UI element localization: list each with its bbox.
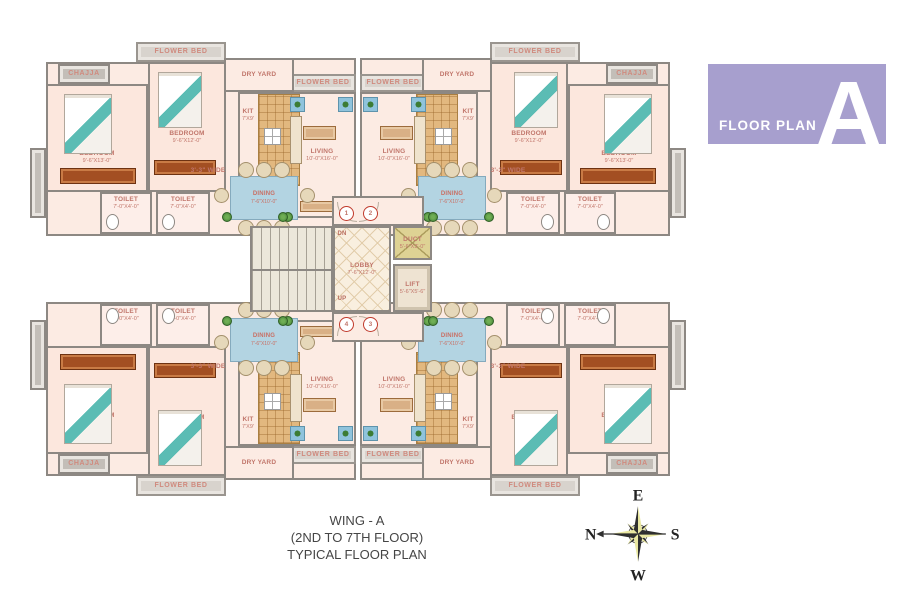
plant-icon-u1: [222, 212, 232, 222]
chair-icon-u2: [444, 220, 460, 236]
kitchen-label-name: KIT: [242, 416, 253, 424]
chajja-corner-u3: CHAJJA: [606, 454, 658, 474]
kitchen-label-name: KIT: [462, 416, 473, 424]
duct-dim: 5'-6"X3'-0": [400, 244, 426, 251]
staircase: [250, 226, 333, 312]
flower-bed-center-u3: FLOWER BED: [360, 446, 426, 464]
chair-icon-u3: [462, 360, 478, 376]
dining-table-name: DINING: [441, 191, 463, 199]
stairs-dn-label: DN: [334, 231, 350, 239]
flower-bed-u2: FLOWER BED: [490, 42, 580, 62]
flower-bed-center-label: FLOWER BED: [296, 79, 349, 87]
dining-table-dim: 7'-6"X10'-0": [439, 199, 465, 206]
wc-icon-u2: [541, 214, 554, 230]
toilet-name: TOILET: [171, 196, 195, 204]
bed-u4: [158, 410, 202, 466]
kitchen-sink-icon-u3: [435, 393, 452, 410]
lift-name: LIFT: [405, 281, 420, 289]
bedroom-large-dim: 9'-6"X13'-0": [83, 158, 112, 165]
planter-icon-u3: [363, 426, 378, 441]
dry-yard-label: DRY YARD: [440, 459, 474, 467]
dry-yard-u4: DRY YARD: [224, 446, 294, 480]
chair-icon-u3: [426, 360, 442, 376]
living-dim: 10'-0"X16'-0": [378, 384, 410, 391]
chair-icon-u2: [444, 162, 460, 178]
duct-name: DUCT: [403, 236, 422, 244]
wc-icon-u4: [106, 308, 119, 324]
compass-north-label: N: [585, 527, 597, 544]
chair-icon-u1: [238, 162, 254, 178]
living-name: LIVING: [311, 148, 334, 156]
chajja-corner-u1: CHAJJA: [58, 64, 110, 84]
kitchen-label-u1: KIT7'X9': [234, 106, 262, 124]
kitchen-label-dim: 7'X9': [242, 424, 254, 431]
dry-yard-u1: DRY YARD: [224, 58, 294, 92]
plant-icon: [428, 316, 438, 326]
wardrobe-u1: [60, 168, 136, 184]
wardrobe-u2: [580, 168, 656, 184]
chair-icon-u3: [462, 302, 478, 318]
flower-bed-center-label: FLOWER BED: [296, 451, 349, 459]
chair-icon-u3: [444, 302, 460, 318]
passage-label-u1: 3'-3" WIDE: [180, 166, 236, 176]
stairs-dn-label-label: DN: [337, 231, 346, 239]
bed-u2: [514, 72, 558, 128]
toilet-dim: 7'-0"X4'-0": [520, 204, 546, 211]
kitchen-label-u3: KIT7'X9': [454, 414, 482, 432]
compass-west-label: W: [630, 567, 646, 584]
bed-u3: [604, 384, 652, 444]
living-name: LIVING: [383, 148, 406, 156]
dining-table-dim: 7'-6"X10'-0": [251, 199, 277, 206]
wc-icon-u4: [162, 308, 175, 324]
daybed-u1: [303, 126, 336, 140]
flower-bed-label: FLOWER BED: [154, 482, 207, 490]
bed-u3: [514, 410, 558, 466]
chair-icon-u4: [238, 360, 254, 376]
planter-icon-u1: [290, 97, 305, 112]
wc-icon-u1: [162, 214, 175, 230]
kitchen-label-name: KIT: [462, 108, 473, 116]
lift-dim: 5'-6"X5'-6": [400, 289, 426, 296]
unit-number-3-label: 3: [369, 321, 373, 329]
passage-label-label: 3'-3" WIDE: [491, 167, 526, 175]
badge-letter: A: [816, 68, 882, 144]
plant-icon-u3: [484, 316, 494, 326]
chair-icon-u1: [300, 188, 315, 203]
flower-bed-u1: FLOWER BED: [136, 42, 226, 62]
chajja-corner-label: CHAJJA: [68, 460, 100, 468]
passage-label-u2: 3'-3" WIDE: [480, 166, 536, 176]
dining-table-name: DINING: [253, 191, 275, 199]
dining-table-dim: 7'-6"X10'-0": [439, 341, 465, 348]
flower-bed-center-u2: FLOWER BED: [360, 74, 426, 92]
chair-icon-u3: [487, 335, 502, 350]
kitchen-sink-icon-u1: [264, 128, 281, 145]
flower-bed-center-u1: FLOWER BED: [290, 74, 356, 92]
bed-u4: [64, 384, 112, 444]
living-dim: 10'-0"X16'-0": [378, 156, 410, 163]
chajja-corner-u2: CHAJJA: [606, 64, 658, 84]
lobby-dim: 7'-6"X12'-0": [348, 270, 377, 277]
living-name: LIVING: [383, 376, 406, 384]
compass-east-label: E: [633, 488, 644, 505]
flower-bed-center-label: FLOWER BED: [366, 451, 419, 459]
unit-number-2-label: 2: [369, 210, 373, 218]
sofa-u3: [414, 374, 426, 422]
badge-title: FLOOR PLAN: [719, 118, 817, 133]
wc-icon-u3: [597, 308, 610, 324]
flower-bed-label: FLOWER BED: [154, 48, 207, 56]
living-dim: 10'-0"X16'-0": [306, 156, 338, 163]
passage-label-label: 3'-3" WIDE: [491, 363, 526, 371]
chair-icon-u4: [214, 335, 229, 350]
unit-number-1-label: 1: [345, 210, 349, 218]
planter-icon-u2: [363, 97, 378, 112]
dry-yard-u2: DRY YARD: [422, 58, 492, 92]
toilet-dim: 7'-0"X4'-0": [170, 204, 196, 211]
chair-icon-u3: [444, 360, 460, 376]
chair-icon-u1: [274, 162, 290, 178]
dining-table-name: DINING: [253, 333, 275, 341]
daybed-u4: [303, 398, 336, 412]
unit-number-4: 4: [339, 317, 354, 332]
chair-icon-u4: [256, 360, 272, 376]
chair-icon-u4: [274, 360, 290, 376]
chajja-corner-label: CHAJJA: [616, 70, 648, 78]
lobby-name: LOBBY: [350, 262, 374, 270]
stairs-up-label: UP: [334, 296, 350, 304]
dry-yard-label: DRY YARD: [242, 71, 276, 79]
plant-icon-u2: [484, 212, 494, 222]
compass-south-label: S: [671, 527, 680, 544]
flower-bed-center-u4: FLOWER BED: [290, 446, 356, 464]
compass-rose-icon: E S W N: [582, 482, 694, 586]
toilet-dim: 7'-0"X4'-0": [113, 204, 139, 211]
toilet-dim: 7'-0"X4'-0": [577, 204, 603, 211]
plant-icon: [278, 316, 288, 326]
plan-caption: WING - A (2ND TO 7TH FLOOR) TYPICAL FLOO…: [257, 512, 457, 563]
unit-number-4-label: 4: [345, 321, 349, 329]
dry-yard-label: DRY YARD: [242, 459, 276, 467]
wardrobe-u3: [580, 354, 656, 370]
dry-yard-u3: DRY YARD: [422, 446, 492, 480]
kitchen-label-dim: 7'X9': [462, 424, 474, 431]
flower-bed-u3: FLOWER BED: [490, 476, 580, 496]
wc-icon-u1: [106, 214, 119, 230]
chajja-band-u2: [670, 148, 686, 218]
sofa-u1: [290, 116, 302, 164]
living-name: LIVING: [311, 376, 334, 384]
plant-icon: [428, 212, 438, 222]
chajja-band-u1: [30, 148, 46, 218]
daybed-u2: [380, 126, 413, 140]
plant-icon: [278, 212, 288, 222]
living-dim: 10'-0"X16'-0": [306, 384, 338, 391]
chair-icon-u4: [300, 335, 315, 350]
chair-icon-u1: [256, 162, 272, 178]
chair-icon-u2: [462, 162, 478, 178]
toilet-name: TOILET: [578, 196, 602, 204]
sofa-u2: [414, 116, 426, 164]
bed-u2: [604, 94, 652, 154]
bed-u1: [64, 94, 112, 154]
duct: DUCT5'-6"X3'-0": [393, 226, 432, 260]
caption-wing: WING - A: [257, 512, 457, 529]
flower-bed-center-label: FLOWER BED: [366, 79, 419, 87]
bed-u1: [158, 72, 202, 128]
chair-icon-u1: [214, 188, 229, 203]
chajja-corner-u4: CHAJJA: [58, 454, 110, 474]
planter-icon-u1: [338, 97, 353, 112]
dining-table-dim: 7'-6"X10'-0": [251, 341, 277, 348]
flower-bed-label: FLOWER BED: [508, 482, 561, 490]
planter-icon-u4: [290, 426, 305, 441]
caption-floors: (2ND TO 7TH FLOOR): [257, 529, 457, 546]
stairs-up-label-label: UP: [338, 296, 347, 304]
chajja-band-u3: [670, 320, 686, 390]
planter-icon-u2: [411, 97, 426, 112]
wc-icon-u2: [597, 214, 610, 230]
kitchen-label-name: KIT: [242, 108, 253, 116]
toilet-name: TOILET: [521, 196, 545, 204]
north-arrowhead: [596, 531, 603, 538]
bedroom-small-dim: 9'-6"X12'-0": [173, 138, 202, 145]
caption-type: TYPICAL FLOOR PLAN: [257, 546, 457, 563]
kitchen-sink-icon-u4: [264, 393, 281, 410]
passage-label-u3: 3'-3" WIDE: [480, 362, 536, 372]
passage-label-label: 3'-3" WIDE: [191, 363, 226, 371]
chair-icon-u2: [426, 162, 442, 178]
chajja-corner-label: CHAJJA: [68, 70, 100, 78]
toilet-name: TOILET: [114, 196, 138, 204]
chajja-corner-label: CHAJJA: [616, 460, 648, 468]
chair-icon-u2: [462, 220, 478, 236]
dining-table-name: DINING: [441, 333, 463, 341]
sofa-u4: [290, 374, 302, 422]
plant-icon-u4: [222, 316, 232, 326]
unit-number-1: 1: [339, 206, 354, 221]
kitchen-label-dim: 7'X9': [462, 116, 474, 123]
unit-number-2: 2: [363, 206, 378, 221]
kitchen-label-u2: KIT7'X9': [454, 106, 482, 124]
unit-number-3: 3: [363, 317, 378, 332]
planter-icon-u4: [338, 426, 353, 441]
passage-label-label: 3'-3" WIDE: [191, 167, 226, 175]
planter-icon-u3: [411, 426, 426, 441]
kitchen-sink-icon-u2: [435, 128, 452, 145]
lift: LIFT5'-6"X5'-6": [393, 264, 432, 312]
dry-yard-label: DRY YARD: [440, 71, 474, 79]
kitchen-label-u4: KIT7'X9': [234, 414, 262, 432]
floor-plan-badge: FLOOR PLAN A: [708, 64, 886, 144]
daybed-u3: [380, 398, 413, 412]
chajja-band-u4: [30, 320, 46, 390]
flower-bed-u4: FLOWER BED: [136, 476, 226, 496]
kitchen-label-dim: 7'X9': [242, 116, 254, 123]
toilet-u2: TOILET7'-0"X4'-0": [564, 192, 616, 234]
passage-label-u4: 3'-3" WIDE: [180, 362, 236, 372]
flower-bed-label: FLOWER BED: [508, 48, 561, 56]
bedroom-small-dim: 9'-6"X12'-0": [515, 138, 544, 145]
chair-icon-u2: [487, 188, 502, 203]
bedroom-small-name: BEDROOM: [511, 130, 546, 138]
bedroom-small-name: BEDROOM: [169, 130, 204, 138]
wc-icon-u3: [541, 308, 554, 324]
wardrobe-u4: [60, 354, 136, 370]
floor-plan-sheet: CHAJJAFLOWER BEDFLOWER BEDDRY YARDBEDROO…: [0, 0, 909, 591]
bedroom-large-dim: 9'-6"X13'-0": [605, 158, 634, 165]
